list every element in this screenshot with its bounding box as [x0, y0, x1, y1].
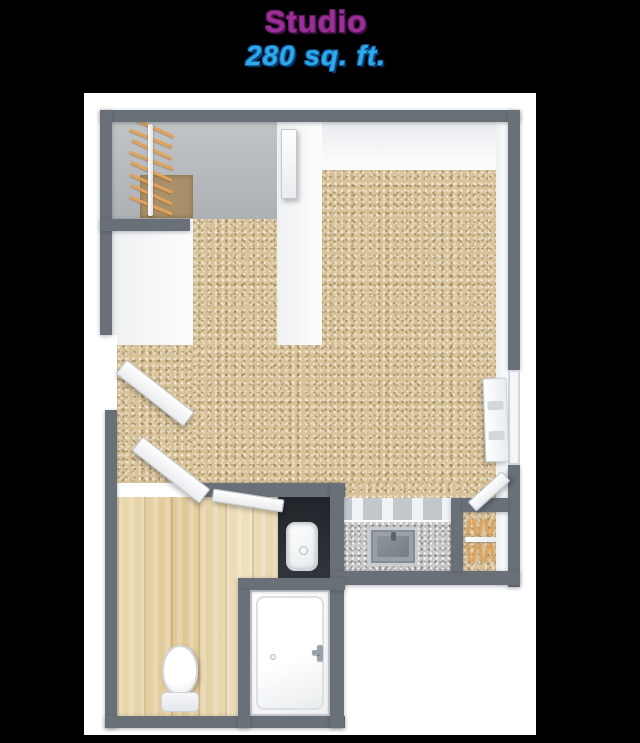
bathroom-sink [286, 522, 318, 571]
wall-bath-kitchen [330, 483, 344, 728]
tub-left-wall [238, 590, 250, 728]
page: Studio 280 sq. ft. [0, 0, 640, 743]
wall-face-top [297, 122, 506, 170]
entry-opening [100, 335, 117, 412]
bathtub-handle [312, 650, 320, 655]
closet-rod [148, 124, 153, 216]
window [508, 370, 520, 465]
bathtub-drain [270, 654, 276, 660]
floorplan-card [84, 93, 536, 735]
radiator [483, 378, 510, 463]
closet-a-bottom-wall [100, 219, 190, 231]
wall-face-below-closet [112, 231, 193, 345]
wall-kitchen-closet [451, 498, 463, 571]
toilet [162, 645, 198, 695]
walkin-closet-floor [112, 122, 277, 219]
wall-right-lower [508, 465, 520, 587]
wall-right-upper [508, 110, 520, 370]
wall-kitchen-bottom [330, 571, 520, 585]
wall-bottom [105, 716, 345, 728]
wall-left-lower [105, 410, 117, 728]
walkin-closet-door [281, 129, 297, 199]
kitchen-sink [368, 527, 418, 566]
area-subtitle: 280 sq. ft. [0, 40, 632, 72]
wall-top [100, 110, 520, 122]
upper-cabinets [333, 498, 453, 522]
tub-top-wall [238, 578, 345, 590]
header: Studio 280 sq. ft. [0, 4, 632, 72]
page-title: Studio [0, 4, 632, 40]
toilet-tank [161, 692, 199, 712]
